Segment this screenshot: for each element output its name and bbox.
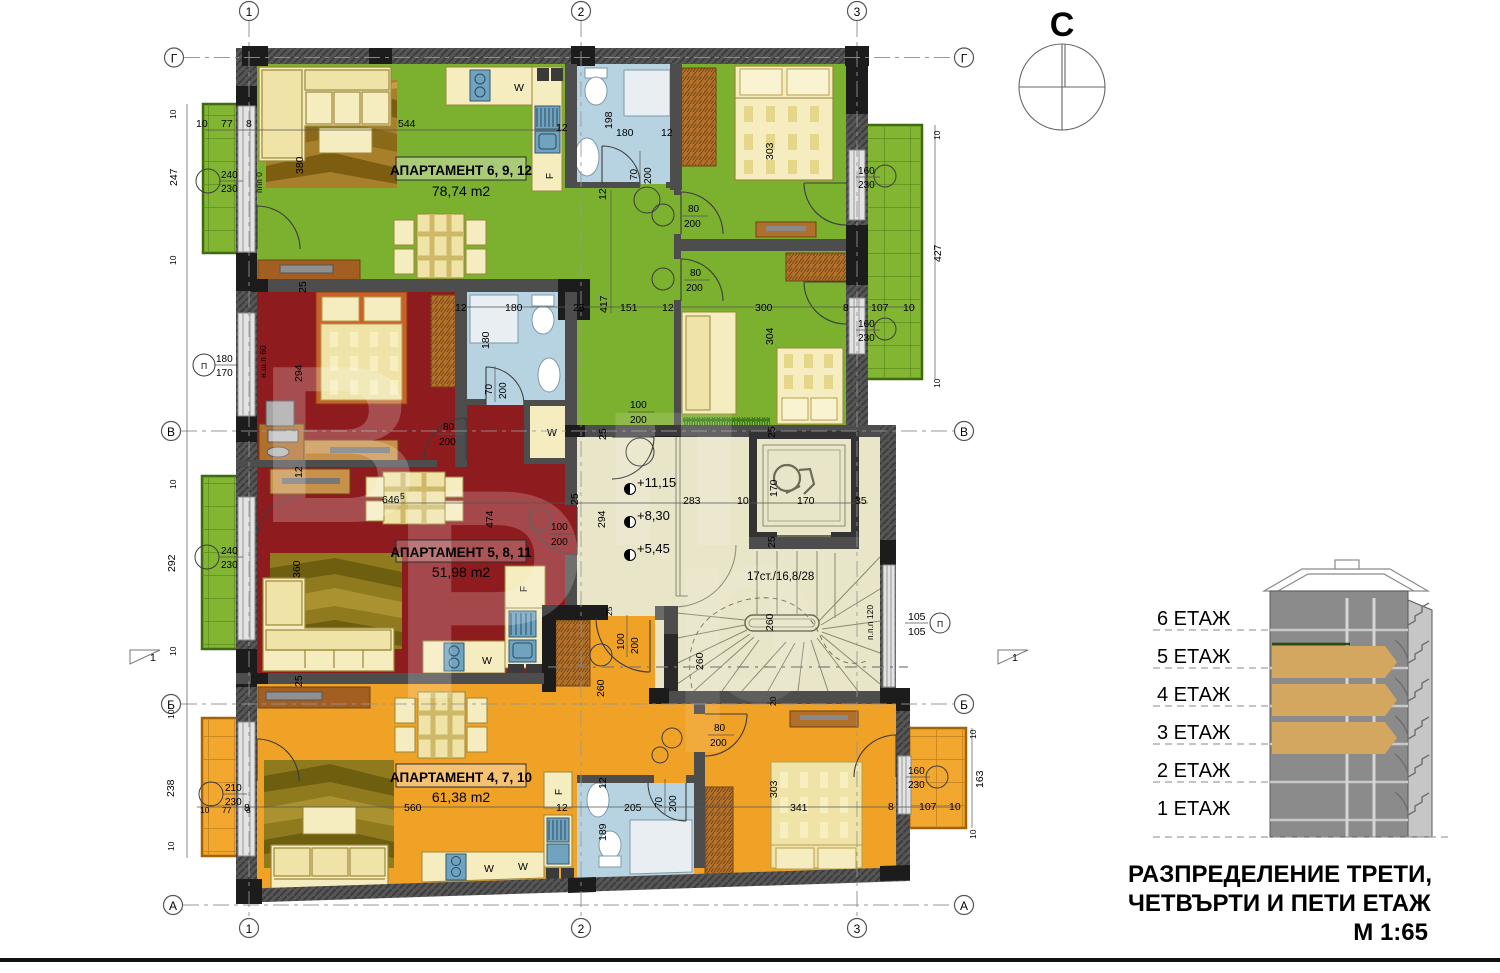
svg-text:180: 180 bbox=[616, 127, 634, 139]
svg-text:10: 10 bbox=[168, 479, 178, 489]
svg-text:10: 10 bbox=[168, 646, 178, 656]
svg-text:1: 1 bbox=[150, 652, 156, 664]
svg-text:25: 25 bbox=[297, 281, 309, 293]
svg-text:2: 2 bbox=[578, 5, 585, 19]
svg-text:В: В bbox=[167, 425, 175, 439]
svg-text:10: 10 bbox=[949, 801, 961, 813]
svg-text:80: 80 bbox=[688, 204, 700, 215]
svg-text:189: 189 bbox=[597, 823, 609, 841]
svg-text:Г: Г bbox=[961, 52, 968, 66]
svg-text:78,74 m2: 78,74 m2 bbox=[432, 183, 491, 199]
svg-text:10: 10 bbox=[903, 302, 915, 314]
svg-text:230: 230 bbox=[858, 180, 875, 191]
svg-text:77: 77 bbox=[221, 118, 233, 130]
svg-text:+11,15: +11,15 bbox=[637, 475, 676, 490]
svg-text:292: 292 bbox=[166, 554, 178, 572]
svg-text:+8,30: +8,30 bbox=[637, 508, 670, 523]
svg-text:1: 1 bbox=[246, 922, 253, 936]
svg-text:10: 10 bbox=[166, 841, 176, 851]
svg-text:80: 80 bbox=[714, 723, 726, 734]
svg-text:427: 427 bbox=[932, 244, 944, 262]
svg-text:10: 10 bbox=[932, 130, 942, 140]
svg-text:70: 70 bbox=[654, 796, 665, 808]
svg-text:283: 283 bbox=[683, 495, 701, 507]
svg-text:380: 380 bbox=[294, 156, 306, 174]
svg-text:р: р bbox=[668, 474, 821, 753]
svg-text:260: 260 bbox=[694, 652, 706, 670]
svg-text:151: 151 bbox=[620, 302, 638, 314]
svg-text:25: 25 bbox=[293, 675, 305, 687]
svg-text:240: 240 bbox=[221, 170, 238, 181]
svg-text:8: 8 bbox=[246, 118, 252, 130]
svg-text:Б: Б bbox=[960, 698, 968, 712]
svg-text:10: 10 bbox=[168, 109, 178, 119]
svg-text:35: 35 bbox=[855, 495, 867, 507]
svg-text:н.ш.п 60: н.ш.п 60 bbox=[258, 345, 268, 378]
svg-text:П: П bbox=[937, 619, 943, 629]
svg-text:10: 10 bbox=[737, 495, 749, 507]
svg-text:2: 2 bbox=[578, 922, 585, 936]
svg-text:+5,45: +5,45 bbox=[637, 541, 670, 556]
svg-text:10: 10 bbox=[168, 255, 178, 265]
svg-text:646: 646 bbox=[382, 494, 400, 506]
svg-text:3: 3 bbox=[854, 922, 861, 936]
svg-text:200: 200 bbox=[630, 415, 647, 426]
svg-text:12: 12 bbox=[662, 302, 674, 314]
svg-text:560: 560 bbox=[404, 802, 422, 814]
svg-text:12: 12 bbox=[293, 466, 305, 478]
svg-text:25: 25 bbox=[597, 428, 609, 440]
svg-text:5: 5 bbox=[400, 491, 405, 501]
svg-text:200: 200 bbox=[643, 167, 654, 184]
svg-text:300: 300 bbox=[755, 302, 773, 314]
svg-text:F: F bbox=[545, 173, 556, 179]
svg-text:1: 1 bbox=[246, 5, 253, 19]
svg-text:10: 10 bbox=[968, 729, 978, 739]
svg-text:W: W bbox=[518, 861, 528, 873]
svg-text:80: 80 bbox=[443, 422, 455, 433]
svg-text:303: 303 bbox=[764, 142, 776, 160]
svg-text:170: 170 bbox=[216, 368, 233, 379]
svg-text:25: 25 bbox=[569, 493, 581, 505]
svg-text:1 ЕТАЖ: 1 ЕТАЖ bbox=[1157, 798, 1231, 820]
svg-text:80: 80 bbox=[690, 268, 702, 279]
svg-text:170: 170 bbox=[768, 479, 780, 497]
svg-text:200: 200 bbox=[668, 795, 679, 812]
svg-text:А: А bbox=[960, 899, 968, 913]
svg-text:РАЗПРЕДЕЛЕНИЕ ТРЕТИ,: РАЗПРЕДЕЛЕНИЕ ТРЕТИ, bbox=[1128, 861, 1432, 888]
svg-text:210: 210 bbox=[225, 783, 242, 794]
svg-text:417: 417 bbox=[598, 295, 610, 313]
svg-text:С: С bbox=[1050, 6, 1075, 44]
svg-text:25: 25 bbox=[766, 426, 778, 438]
svg-text:2 ЕТАЖ: 2 ЕТАЖ bbox=[1157, 760, 1231, 782]
svg-text:8: 8 bbox=[888, 801, 894, 813]
svg-text:25: 25 bbox=[573, 302, 585, 314]
svg-text:230: 230 bbox=[225, 797, 242, 808]
svg-text:5 ЕТАЖ: 5 ЕТАЖ bbox=[1157, 646, 1231, 668]
svg-text:70: 70 bbox=[629, 168, 640, 180]
svg-text:F: F bbox=[554, 789, 565, 795]
svg-text:3 ЕТАЖ: 3 ЕТАЖ bbox=[1157, 722, 1231, 744]
svg-text:61,38 m2: 61,38 m2 bbox=[432, 789, 491, 805]
svg-text:ппп 0: ппп 0 bbox=[254, 172, 264, 193]
svg-text:360: 360 bbox=[291, 560, 303, 578]
svg-text:10: 10 bbox=[196, 118, 208, 130]
svg-text:12: 12 bbox=[597, 777, 609, 789]
svg-text:260: 260 bbox=[595, 679, 607, 697]
svg-text:ЧЕТВЪРТИ И ПЕТИ ЕТАЖ: ЧЕТВЪРТИ И ПЕТИ ЕТАЖ bbox=[1128, 890, 1431, 917]
svg-text:474: 474 bbox=[484, 510, 496, 528]
svg-text:200: 200 bbox=[630, 637, 641, 654]
svg-text:205: 205 bbox=[624, 802, 642, 814]
svg-text:12: 12 bbox=[597, 188, 609, 200]
svg-text:АПАРТАМЕНТ 6, 9, 12: АПАРТАМЕНТ 6, 9, 12 bbox=[390, 163, 532, 178]
svg-text:4 ЕТАЖ: 4 ЕТАЖ bbox=[1157, 684, 1231, 706]
svg-text:10: 10 bbox=[932, 378, 942, 388]
svg-text:W: W bbox=[484, 863, 494, 875]
svg-text:200: 200 bbox=[498, 382, 509, 399]
svg-text:25: 25 bbox=[766, 536, 778, 548]
svg-text:12: 12 bbox=[556, 122, 568, 134]
svg-text:180: 180 bbox=[480, 331, 492, 349]
svg-text:В: В bbox=[960, 425, 968, 439]
svg-text:341: 341 bbox=[790, 802, 808, 814]
svg-text:230: 230 bbox=[908, 780, 925, 791]
svg-text:163: 163 bbox=[974, 770, 986, 788]
svg-text:160: 160 bbox=[908, 766, 925, 777]
svg-text:105: 105 bbox=[908, 611, 926, 623]
svg-text:100: 100 bbox=[551, 522, 568, 533]
svg-text:200: 200 bbox=[551, 537, 568, 548]
svg-text:230: 230 bbox=[858, 333, 875, 344]
svg-text:230: 230 bbox=[221, 560, 238, 571]
svg-text:260: 260 bbox=[764, 613, 776, 631]
svg-text:200: 200 bbox=[710, 738, 727, 749]
svg-text:Г: Г bbox=[171, 52, 178, 66]
svg-text:107: 107 bbox=[871, 302, 889, 314]
svg-text:105: 105 bbox=[908, 626, 926, 638]
svg-text:20: 20 bbox=[768, 696, 778, 706]
svg-text:200: 200 bbox=[439, 437, 456, 448]
svg-text:АПАРТАМЕНТ 4, 7, 10: АПАРТАМЕНТ 4, 7, 10 bbox=[390, 770, 532, 785]
svg-text:17ст./16,8/28: 17ст./16,8/28 bbox=[747, 571, 814, 583]
svg-text:198: 198 bbox=[603, 111, 615, 129]
svg-text:160: 160 bbox=[858, 319, 875, 330]
svg-text:107: 107 bbox=[919, 801, 937, 813]
svg-text:8: 8 bbox=[843, 302, 849, 314]
svg-text:12: 12 bbox=[455, 302, 467, 314]
svg-text:247: 247 bbox=[168, 168, 180, 186]
svg-text:200: 200 bbox=[686, 283, 703, 294]
svg-text:544: 544 bbox=[398, 118, 416, 130]
svg-text:Р: Р bbox=[388, 426, 588, 762]
svg-text:АПАРТАМЕНТ 5, 8, 11: АПАРТАМЕНТ 5, 8, 11 bbox=[390, 545, 532, 560]
svg-text:100: 100 bbox=[630, 400, 647, 411]
svg-text:8: 8 bbox=[246, 805, 251, 815]
svg-text:3: 3 bbox=[854, 5, 861, 19]
svg-text:10: 10 bbox=[968, 829, 978, 839]
svg-text:230: 230 bbox=[221, 184, 238, 195]
svg-text:А: А bbox=[169, 899, 177, 913]
svg-text:П: П bbox=[201, 361, 207, 371]
svg-text:303: 303 bbox=[768, 780, 780, 798]
svg-text:п.п.п 120: п.п.п 120 bbox=[865, 605, 875, 640]
svg-text:240: 240 bbox=[221, 546, 238, 557]
svg-text:12: 12 bbox=[556, 802, 568, 814]
svg-text:51,98 m2: 51,98 m2 bbox=[432, 564, 491, 580]
svg-text:10: 10 bbox=[166, 709, 176, 719]
svg-text:294: 294 bbox=[596, 510, 608, 528]
svg-text:180: 180 bbox=[216, 354, 233, 365]
svg-text:10: 10 bbox=[200, 805, 210, 815]
svg-text:6 ЕТАЖ: 6 ЕТАЖ bbox=[1157, 608, 1231, 630]
svg-text:170: 170 bbox=[797, 495, 815, 507]
svg-text:304: 304 bbox=[764, 327, 776, 345]
svg-text:W: W bbox=[514, 82, 524, 94]
svg-text:160: 160 bbox=[858, 166, 875, 177]
svg-text:200: 200 bbox=[684, 219, 701, 230]
svg-text:1: 1 bbox=[1012, 652, 1018, 664]
svg-text:25: 25 bbox=[604, 606, 614, 616]
svg-text:238: 238 bbox=[165, 779, 177, 797]
svg-text:294: 294 bbox=[293, 364, 305, 382]
svg-text:70: 70 bbox=[484, 383, 495, 395]
svg-text:М 1:65: М 1:65 bbox=[1353, 919, 1428, 946]
svg-text:100: 100 bbox=[616, 633, 627, 650]
svg-text:12: 12 bbox=[661, 127, 673, 139]
svg-text:180: 180 bbox=[505, 302, 523, 314]
